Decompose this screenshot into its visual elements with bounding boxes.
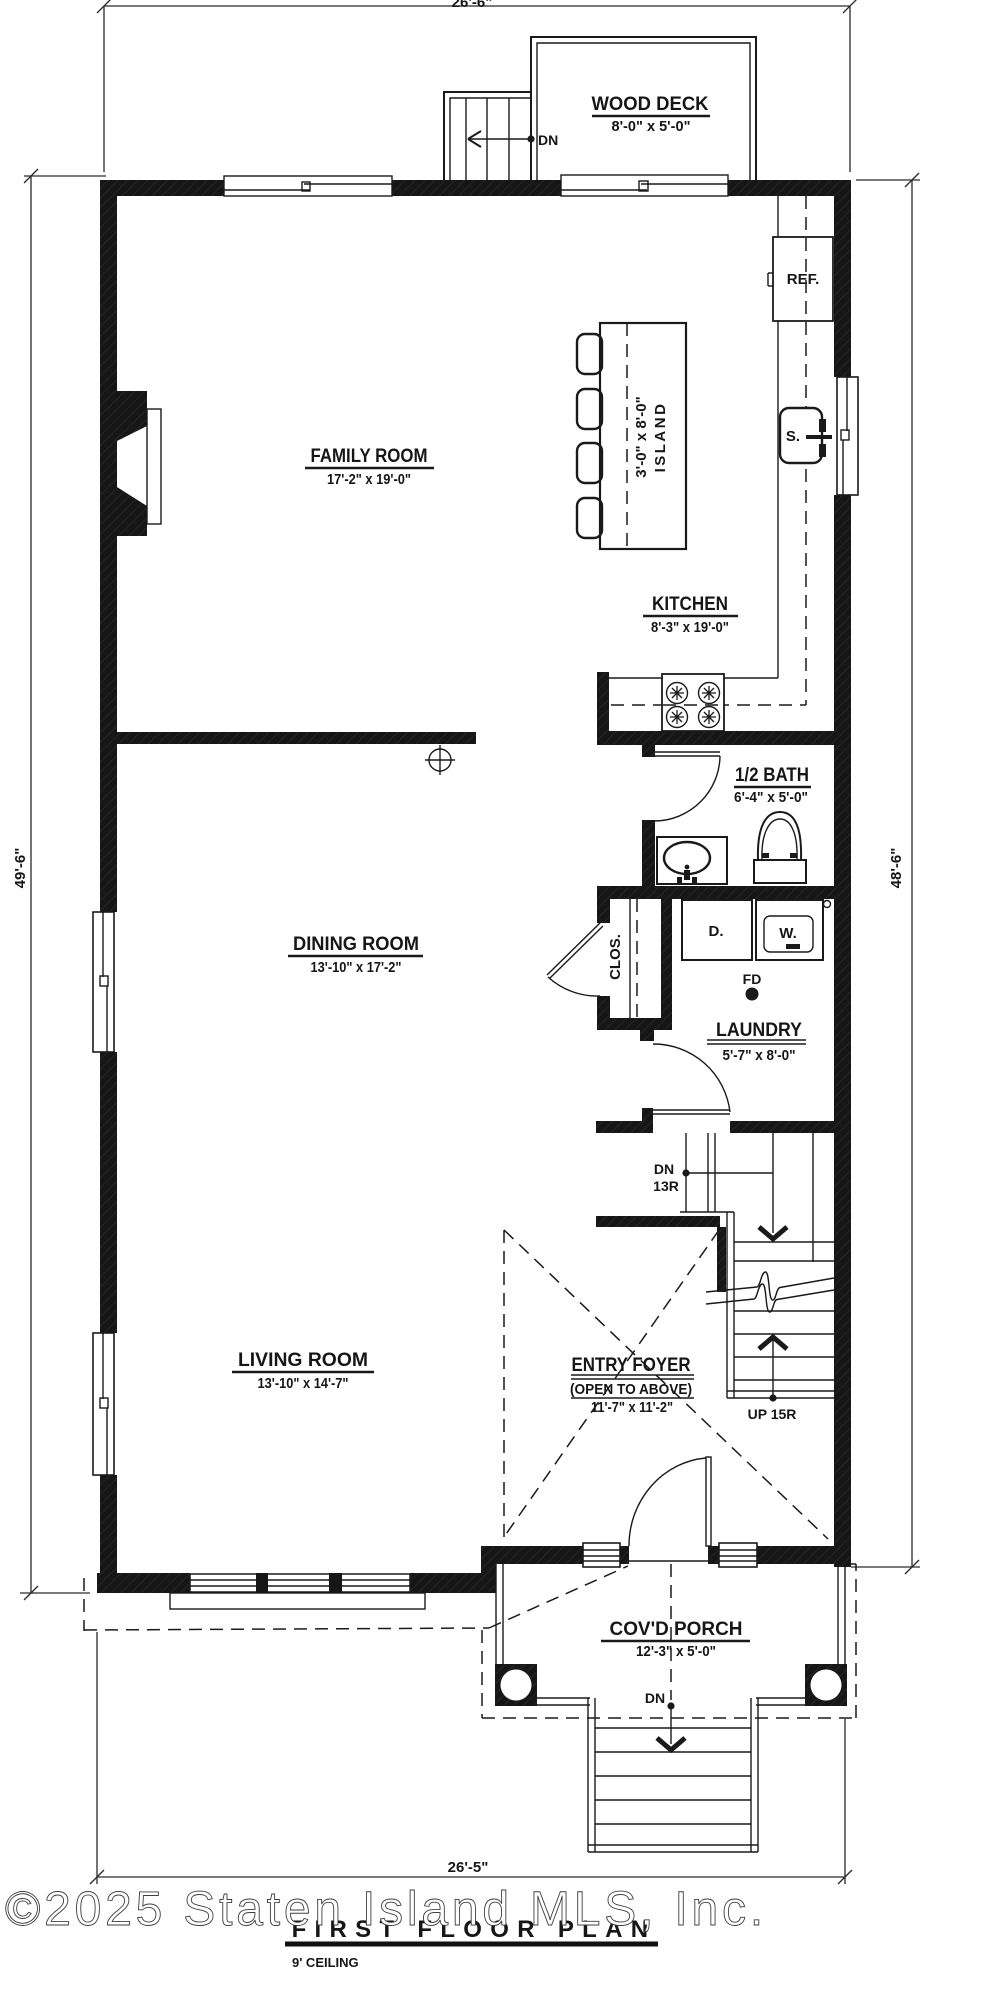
svg-text:REF.: REF. xyxy=(787,271,820,288)
svg-text:W.: W. xyxy=(779,925,797,942)
svg-text:FAMILY ROOM: FAMILY ROOM xyxy=(311,446,428,467)
svg-text:8'-0" x 5'-0": 8'-0" x 5'-0" xyxy=(612,118,691,135)
svg-text:49'-6": 49'-6" xyxy=(12,848,29,889)
svg-text:CLOS.: CLOS. xyxy=(607,934,624,980)
svg-text:DN: DN xyxy=(654,1161,674,1177)
svg-text:(OPEN TO ABOVE): (OPEN TO ABOVE) xyxy=(570,1381,692,1398)
svg-text:26'-6": 26'-6" xyxy=(452,0,493,11)
svg-text:26'-5": 26'-5" xyxy=(448,1859,489,1876)
svg-text:ISLAND: ISLAND xyxy=(652,402,669,473)
svg-text:FD: FD xyxy=(743,971,762,987)
svg-text:9' CEILING: 9' CEILING xyxy=(292,1955,359,1970)
svg-text:D.: D. xyxy=(709,923,724,940)
svg-text:DINING ROOM: DINING ROOM xyxy=(293,934,419,955)
svg-text:6'-4" x 5'-0": 6'-4" x 5'-0" xyxy=(734,789,808,806)
svg-text:ENTRY FOYER: ENTRY FOYER xyxy=(572,1355,691,1376)
svg-text:13'-10" x 17'-2": 13'-10" x 17'-2" xyxy=(311,959,402,976)
svg-text:1/2 BATH: 1/2 BATH xyxy=(735,765,809,786)
svg-text:LAUNDRY: LAUNDRY xyxy=(716,1020,802,1041)
svg-text:S.: S. xyxy=(786,428,800,445)
svg-text:WOOD DECK: WOOD DECK xyxy=(592,94,709,115)
svg-text:17'-2" x 19'-0": 17'-2" x 19'-0" xyxy=(327,471,411,488)
svg-text:DN: DN xyxy=(645,1690,665,1706)
svg-text:3'-0" x 8'-0": 3'-0" x 8'-0" xyxy=(633,396,650,477)
svg-text:LIVING ROOM: LIVING ROOM xyxy=(238,1350,368,1371)
svg-text:48'-6": 48'-6" xyxy=(888,848,905,889)
svg-text:KITCHEN: KITCHEN xyxy=(652,594,728,615)
svg-text:UP 15R: UP 15R xyxy=(748,1406,797,1422)
svg-text:5'-7" x 8'-0": 5'-7" x 8'-0" xyxy=(723,1047,796,1064)
svg-text:12'-3" x 5'-0": 12'-3" x 5'-0" xyxy=(636,1643,716,1660)
svg-text:COV'D PORCH: COV'D PORCH xyxy=(610,1619,743,1640)
svg-text:©2025 Staten Island MLS, Inc.: ©2025 Staten Island MLS, Inc. xyxy=(5,1883,767,1936)
svg-text:13R: 13R xyxy=(653,1178,679,1194)
svg-text:DN: DN xyxy=(538,132,558,148)
svg-text:13'-10" x 14'-7": 13'-10" x 14'-7" xyxy=(258,1375,349,1392)
svg-text:11'-7" x 11'-2": 11'-7" x 11'-2" xyxy=(591,1399,673,1416)
svg-text:8'-3" x 19'-0": 8'-3" x 19'-0" xyxy=(651,619,729,636)
